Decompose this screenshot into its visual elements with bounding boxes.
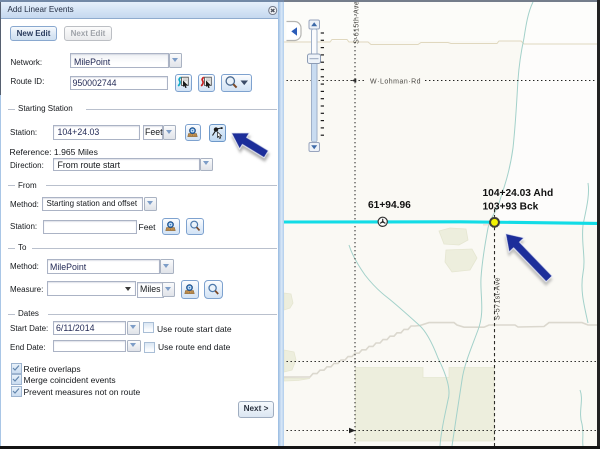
svg-text:61+94.96: 61+94.96 [368,200,411,211]
svg-text:S-571st-Ave: S-571st-Ave [495,277,502,320]
svg-text:S-615th-Ave: S-615th-Ave [354,2,361,44]
svg-text:104+24.03 Ahd: 104+24.03 Ahd [483,188,554,199]
svg-text:W·Lohman·Rd: W·Lohman·Rd [370,79,421,86]
svg-text:103+93 Bck: 103+93 Bck [483,201,539,212]
